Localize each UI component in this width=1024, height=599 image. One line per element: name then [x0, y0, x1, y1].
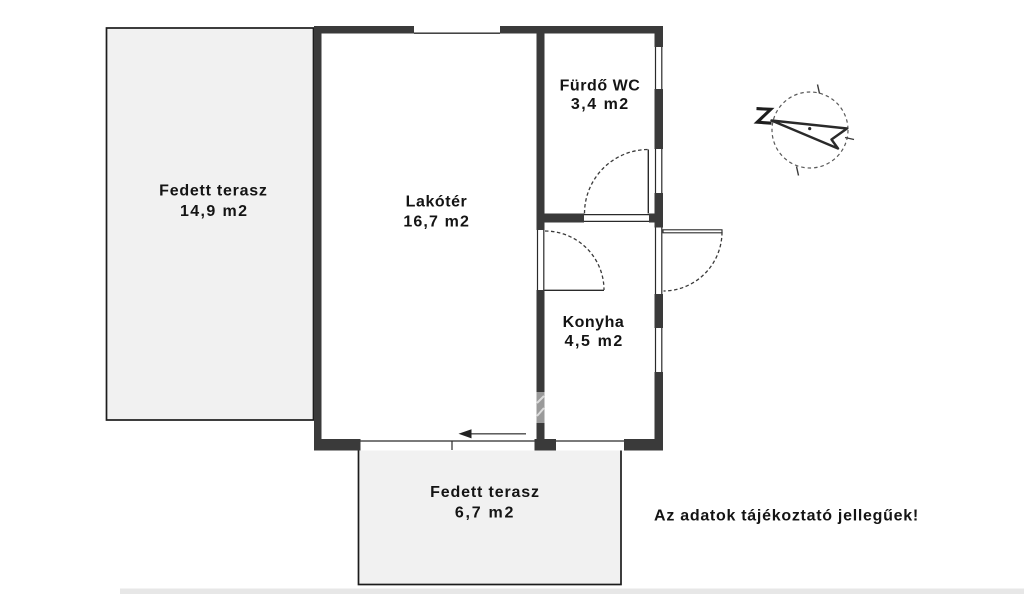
- svg-text:6,7 m2: 6,7 m2: [455, 505, 515, 522]
- svg-text:Fedett terasz: Fedett terasz: [430, 484, 540, 501]
- svg-text:Lakótér: Lakótér: [406, 194, 468, 211]
- svg-text:Az adatok tájékoztató jellegűe: Az adatok tájékoztató jellegűek!: [654, 508, 919, 525]
- svg-text:3,4 m2: 3,4 m2: [571, 96, 630, 113]
- svg-text:Fürdő WC: Fürdő WC: [560, 78, 641, 95]
- svg-text:16,7 m2: 16,7 m2: [403, 213, 470, 230]
- svg-text:Konyha: Konyha: [563, 314, 625, 331]
- svg-text:Fedett terasz: Fedett terasz: [159, 183, 267, 200]
- svg-text:14,9 m2: 14,9 m2: [180, 203, 249, 220]
- svg-text:4,5 m2: 4,5 m2: [564, 333, 623, 350]
